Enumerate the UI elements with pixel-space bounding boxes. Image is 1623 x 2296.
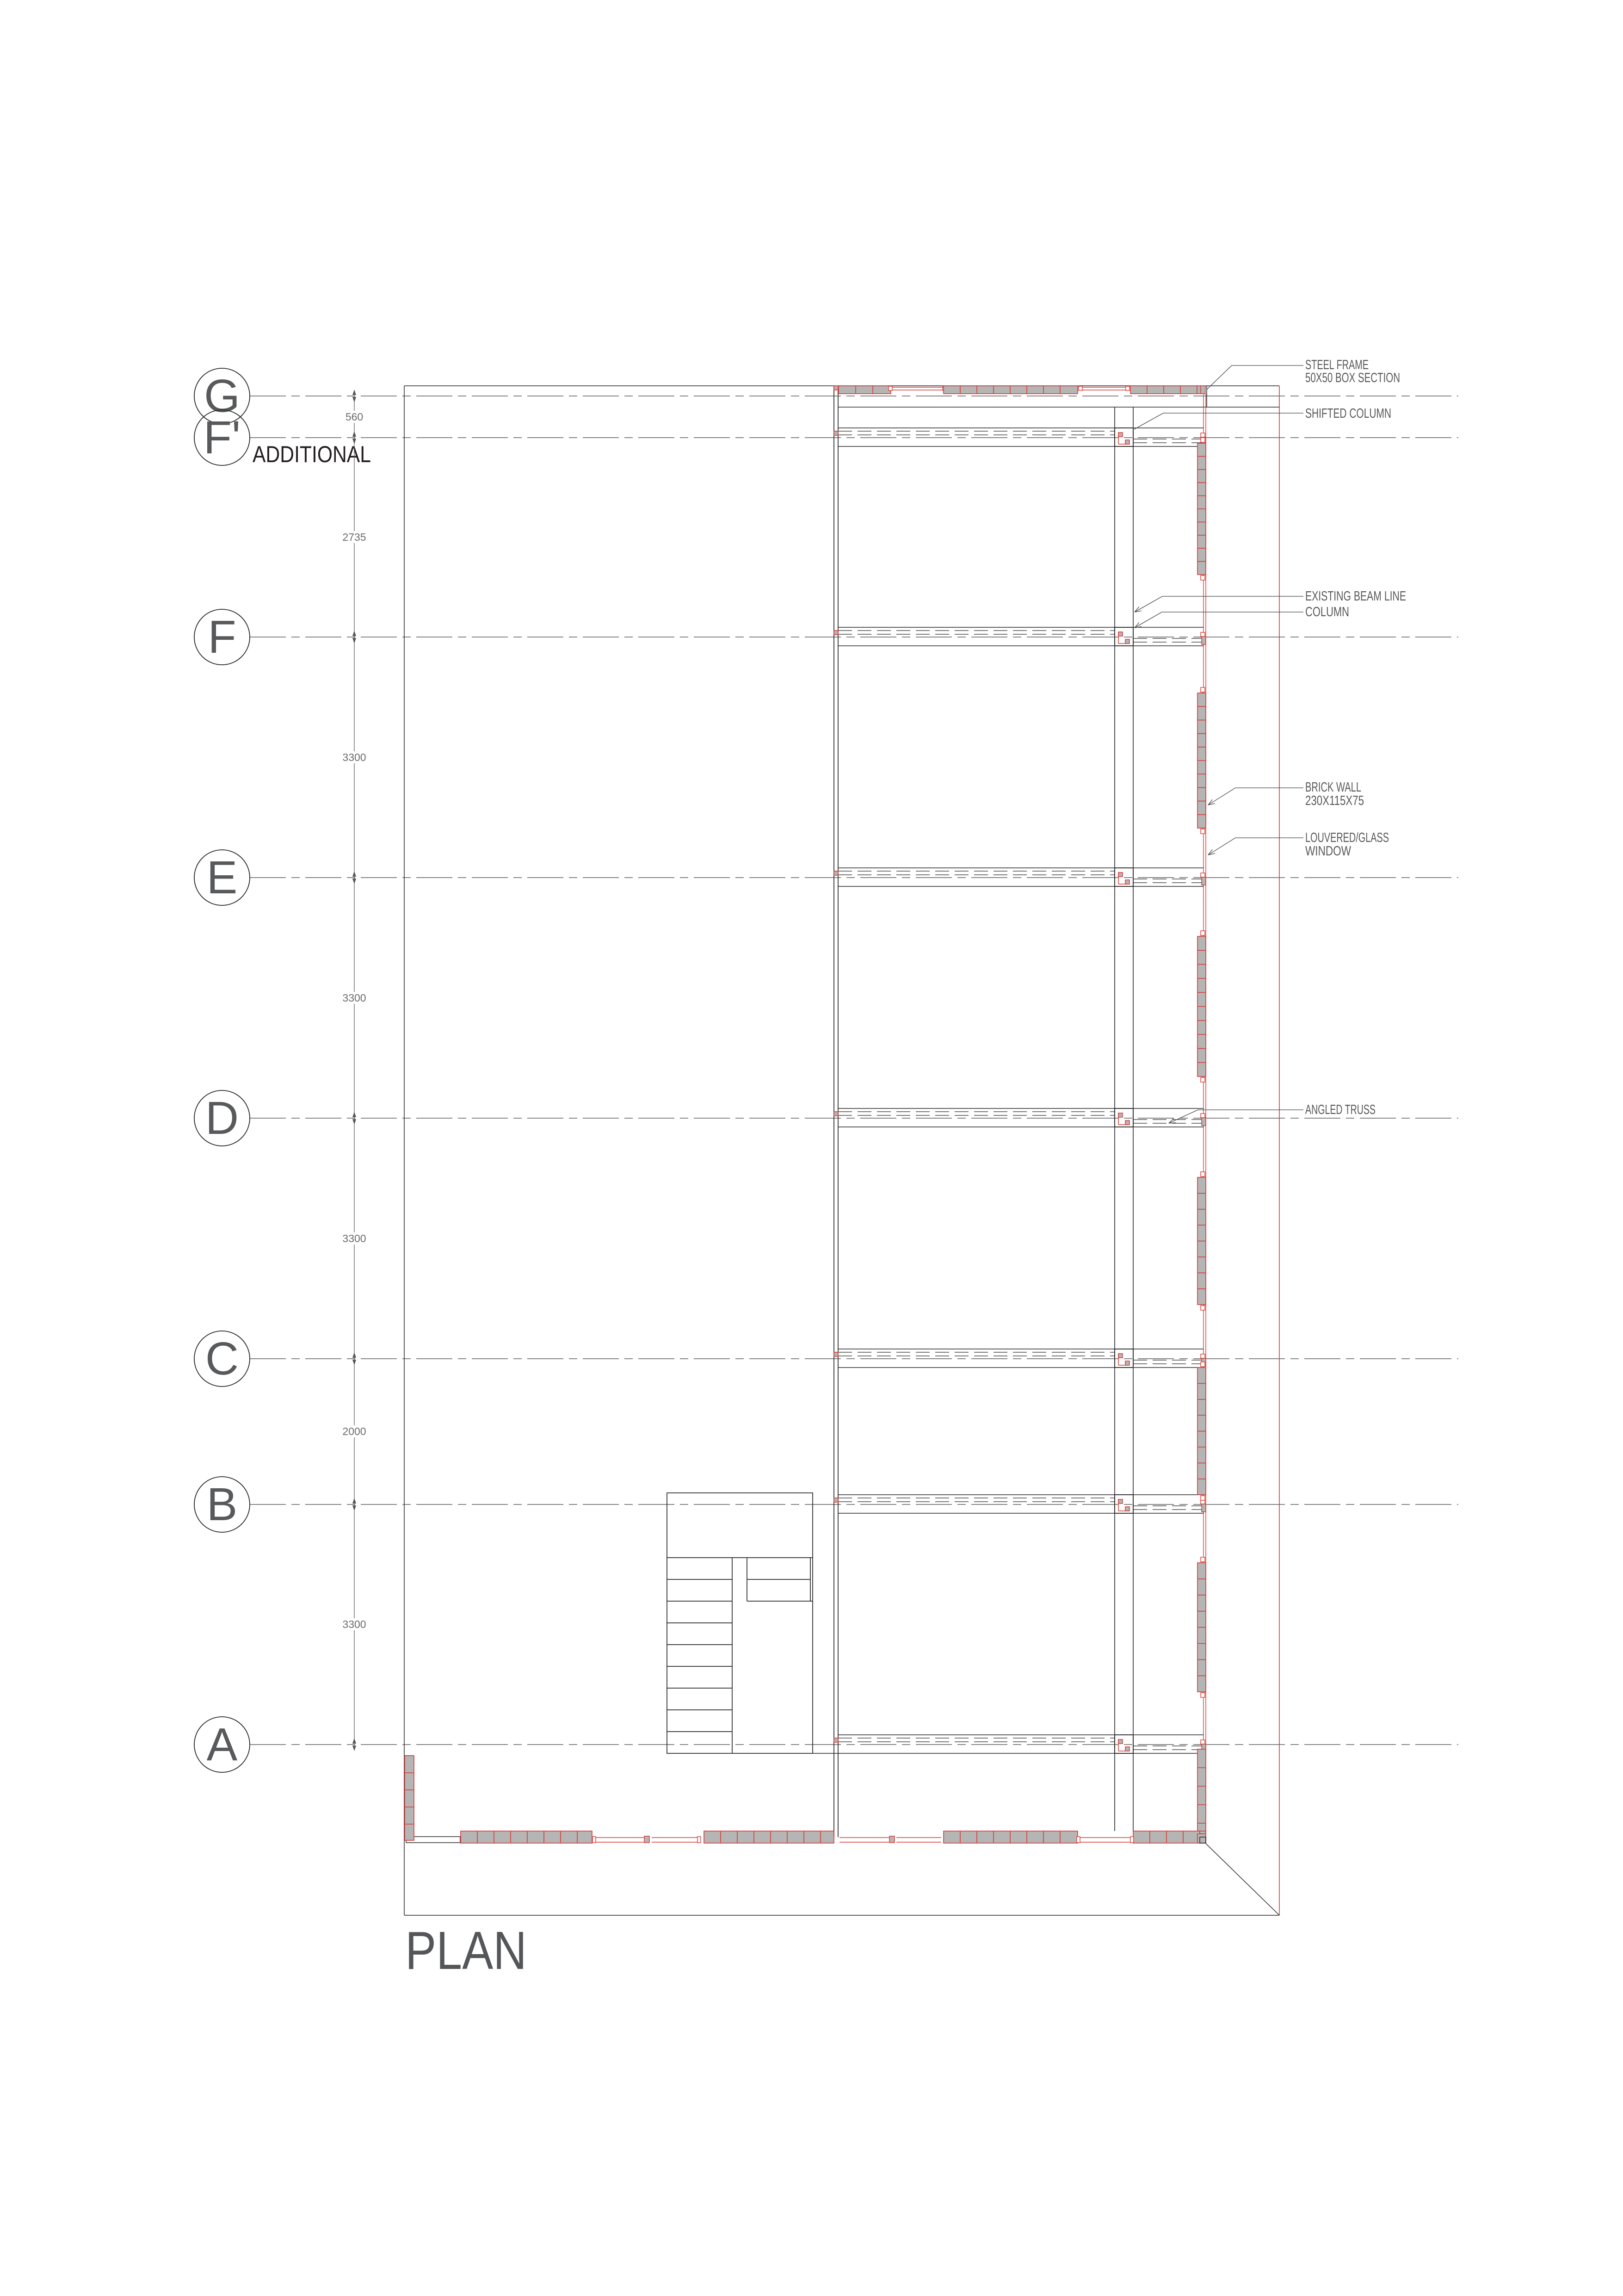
svg-text:F': F'	[204, 412, 241, 464]
svg-text:ANGLED TRUSS: ANGLED TRUSS	[1305, 1102, 1376, 1117]
svg-text:SHIFTED COLUMN: SHIFTED COLUMN	[1305, 406, 1391, 421]
svg-text:560: 560	[346, 411, 363, 423]
svg-text:F: F	[208, 611, 236, 663]
svg-text:ADDITIONAL: ADDITIONAL	[253, 441, 371, 467]
svg-text:D: D	[205, 1092, 239, 1144]
svg-text:2735: 2735	[342, 531, 366, 543]
svg-text:E: E	[207, 852, 238, 904]
svg-text:C: C	[205, 1333, 239, 1385]
svg-text:3300: 3300	[342, 992, 366, 1004]
svg-text:2000: 2000	[342, 1425, 366, 1437]
svg-text:3300: 3300	[342, 1618, 366, 1630]
svg-text:3300: 3300	[342, 1232, 366, 1244]
svg-text:BRICK WALL: BRICK WALL	[1305, 780, 1361, 795]
svg-text:PLAN: PLAN	[405, 1920, 527, 1980]
svg-text:LOUVERED/GLASS: LOUVERED/GLASS	[1305, 830, 1389, 845]
svg-text:3300: 3300	[342, 751, 366, 763]
svg-text:EXISTING BEAM LINE: EXISTING BEAM LINE	[1305, 589, 1406, 604]
svg-text:230X115X75: 230X115X75	[1305, 793, 1364, 808]
svg-text:50X50 BOX SECTION: 50X50 BOX SECTION	[1305, 371, 1400, 385]
svg-text:A: A	[207, 1719, 238, 1770]
svg-text:B: B	[207, 1479, 238, 1530]
svg-text:WINDOW: WINDOW	[1305, 844, 1351, 859]
svg-text:COLUMN: COLUMN	[1305, 605, 1349, 619]
